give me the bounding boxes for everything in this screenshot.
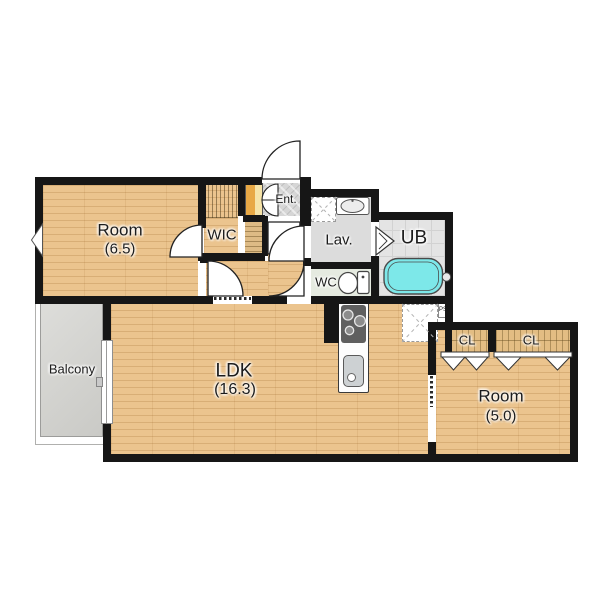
- wall: [198, 177, 206, 228]
- wall: [252, 296, 287, 304]
- room-main-label: Room: [97, 222, 142, 239]
- wall: [445, 330, 452, 352]
- washing-machine-space-icon: [311, 197, 336, 222]
- room-main-area: (6.5): [105, 242, 136, 257]
- shoe-cabinet: [245, 183, 263, 216]
- wall: [428, 322, 436, 375]
- lavatory-label: Lav.: [325, 233, 352, 248]
- swing-door-icon: [262, 141, 300, 179]
- wall: [262, 216, 268, 256]
- wall: [428, 322, 578, 330]
- wall: [35, 296, 213, 304]
- wall: [570, 322, 578, 462]
- wall: [238, 177, 245, 216]
- gas-stove-icon: [341, 305, 366, 343]
- floor-plan: Room (6.5) WIC Ent. Lav. UB WC LDK (16.3…: [0, 0, 600, 600]
- hallway-floor-2: [206, 261, 268, 296]
- hallway-floor: [268, 222, 303, 296]
- wall: [35, 177, 262, 185]
- wic-label: WIC: [207, 228, 236, 243]
- closet-right-label: CL: [523, 334, 540, 347]
- room-second-sliding-door: [428, 375, 436, 442]
- room-second-area: (5.0): [486, 409, 517, 424]
- balcony-window-track: [106, 341, 107, 423]
- wall: [428, 442, 436, 458]
- balcony-window-handle: [96, 377, 103, 387]
- ldk-sliding-door: [213, 296, 252, 304]
- wall: [311, 262, 379, 269]
- wall: [198, 253, 265, 261]
- wall: [243, 215, 265, 222]
- entrance-label: Ent.: [275, 193, 296, 205]
- ldk-area: (16.3): [214, 382, 256, 398]
- room-second-label: Room: [478, 388, 523, 405]
- wall: [324, 303, 339, 343]
- wall: [371, 212, 453, 220]
- balcony-label: Balcony: [49, 363, 95, 376]
- wall: [300, 177, 311, 226]
- pipe-space-label: PS: [439, 307, 447, 313]
- closet-left-label: CL: [459, 334, 476, 347]
- unit-bath-label: UB: [401, 229, 427, 248]
- wall: [35, 177, 43, 303]
- ldk-floor: [111, 303, 428, 454]
- wall: [103, 454, 578, 462]
- wc-label: WC: [315, 276, 337, 289]
- wall: [103, 296, 111, 340]
- wall: [488, 330, 496, 352]
- kitchen-sink-icon: [343, 355, 364, 387]
- wall: [303, 189, 379, 197]
- wc-door-clearance: [287, 296, 311, 304]
- ldk-label: LDK: [216, 362, 253, 381]
- wall: [303, 258, 311, 266]
- wic-hanger-area: [204, 183, 238, 218]
